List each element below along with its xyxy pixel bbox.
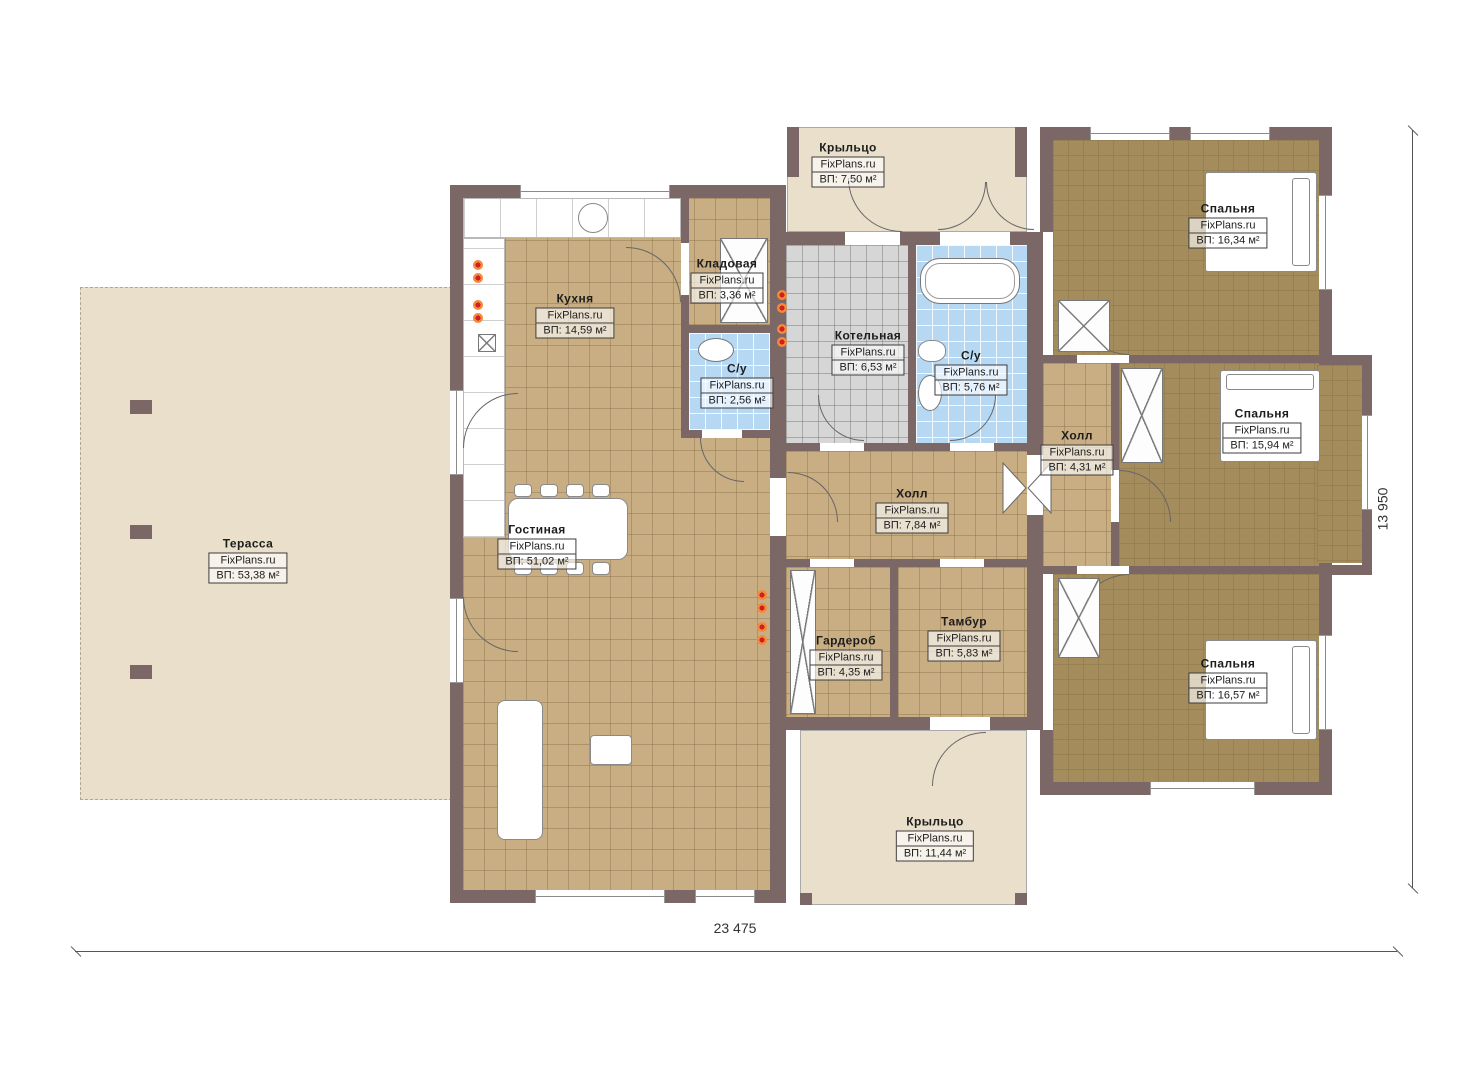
coffee-table — [590, 735, 632, 765]
room-name: Спальня — [1188, 657, 1267, 671]
site-link: FixPlans.ru — [810, 651, 881, 666]
door-opening — [770, 478, 786, 536]
site-link: FixPlans.ru — [536, 309, 613, 324]
bed-pillow — [1292, 178, 1310, 266]
site-link: FixPlans.ru — [935, 366, 1006, 381]
site-link: FixPlans.ru — [832, 346, 903, 361]
site-link: FixPlans.ru — [1041, 446, 1112, 461]
room-label-terrace: Терасса FixPlans.ruВП: 53,38 м² — [208, 537, 287, 584]
window — [1090, 127, 1170, 140]
room-area: ВП: 11,44 м² — [897, 847, 973, 861]
stove-burners-icon — [468, 296, 488, 326]
door-opening — [810, 559, 854, 567]
room-label-porch-bottom: Крыльцо FixPlans.ruВП: 11,44 м² — [896, 815, 974, 862]
room-label-hall-center: Холл FixPlans.ruВП: 7,84 м² — [875, 487, 948, 534]
room-area: ВП: 6,53 м² — [832, 361, 903, 375]
window — [450, 598, 463, 683]
room-name: Холл — [1040, 429, 1113, 443]
sofa — [497, 700, 543, 840]
closet-icon — [1121, 368, 1163, 463]
closet-icon — [1058, 578, 1100, 658]
door-opening — [681, 243, 689, 295]
room-name: Тамбур — [927, 615, 1000, 629]
stove-burners-icon — [468, 256, 488, 286]
chair — [592, 484, 610, 497]
window — [520, 185, 670, 198]
window — [450, 390, 463, 475]
room-name: Крыльцо — [811, 141, 884, 155]
partition-wall — [681, 325, 783, 333]
room-name: Крыльцо — [896, 815, 974, 829]
door-opening — [950, 443, 994, 451]
room-name: Кладовая — [690, 257, 763, 271]
window — [1319, 635, 1332, 730]
site-link: FixPlans.ru — [209, 554, 286, 569]
wall — [450, 185, 463, 903]
porch-post — [800, 893, 812, 905]
toilet-icon — [698, 338, 734, 362]
room-name: Спальня — [1188, 202, 1267, 216]
window — [695, 890, 755, 903]
partition-wall — [908, 245, 916, 443]
partition-wall — [681, 185, 689, 438]
room-area: ВП: 7,50 м² — [812, 173, 883, 187]
porch-post — [787, 127, 799, 177]
terrace-post — [130, 400, 152, 414]
room-name: Гостиная — [497, 523, 576, 537]
room-label-porch-top: Крыльцо FixPlans.ruВП: 7,50 м² — [811, 141, 884, 188]
door-opening — [702, 430, 742, 438]
door-opening — [820, 443, 864, 451]
site-link: FixPlans.ru — [498, 540, 575, 555]
door-opening — [1077, 566, 1129, 574]
room-area: ВП: 7,84 м² — [876, 519, 947, 533]
window — [1150, 782, 1255, 795]
site-link: FixPlans.ru — [1223, 424, 1300, 439]
partition-wall — [890, 567, 898, 717]
bed-pillow — [1292, 646, 1310, 734]
room-name: Холл — [875, 487, 948, 501]
terrace-post — [130, 525, 152, 539]
room-area: ВП: 2,56 м² — [701, 394, 772, 408]
site-link: FixPlans.ru — [928, 632, 999, 647]
bed-pillow — [1226, 374, 1314, 390]
wall — [1040, 127, 1053, 232]
appliance-icon — [478, 334, 496, 352]
site-link: FixPlans.ru — [876, 504, 947, 519]
door-opening — [845, 232, 900, 245]
chair — [592, 562, 610, 575]
door-opening — [940, 559, 984, 567]
door-opening — [1077, 355, 1129, 363]
kitchen-sink-icon — [578, 203, 608, 233]
room-area: ВП: 16,57 м² — [1189, 689, 1266, 703]
bedroom-middle-bay-floor — [1317, 365, 1362, 563]
room-area: ВП: 5,76 м² — [935, 381, 1006, 395]
room-label-hall-small: Холл FixPlans.ruВП: 4,31 м² — [1040, 429, 1113, 476]
door-opening — [940, 232, 1010, 245]
room-name: С/у — [700, 362, 773, 376]
room-label-boiler-room: Котельная FixPlans.ruВП: 6,53 м² — [831, 329, 904, 376]
room-area: ВП: 16,34 м² — [1189, 234, 1266, 248]
porch-post — [1015, 127, 1027, 177]
room-label-wc-small: С/у FixPlans.ruВП: 2,56 м² — [700, 362, 773, 409]
room-label-wardrobe: Гардероб FixPlans.ruВП: 4,35 м² — [809, 634, 882, 681]
bathtub-icon — [920, 258, 1020, 304]
radiator-icon — [772, 286, 792, 316]
chair — [540, 484, 558, 497]
room-label-bedroom-middle: Спальня FixPlans.ruВП: 15,94 м² — [1222, 407, 1301, 454]
window — [1362, 415, 1372, 510]
dimension-height-label: 13 950 — [1375, 488, 1391, 531]
room-name: Котельная — [831, 329, 904, 343]
room-label-bedroom-bottom: Спальня FixPlans.ruВП: 16,57 м² — [1188, 657, 1267, 704]
door-opening — [930, 717, 990, 730]
radiator-icon — [772, 320, 792, 350]
wall — [786, 717, 1040, 730]
room-area: ВП: 53,38 м² — [209, 569, 286, 583]
room-area: ВП: 3,36 м² — [691, 289, 762, 303]
wall — [1040, 127, 1332, 140]
dimension-tick — [1408, 883, 1419, 894]
radiator-icon — [752, 586, 772, 616]
room-label-living-room: Гостиная FixPlans.ruВП: 51,02 м² — [497, 523, 576, 570]
room-label-pantry: Кладовая FixPlans.ruВП: 3,36 м² — [690, 257, 763, 304]
floor-plan-canvas: Терасса FixPlans.ruВП: 53,38 м² Кухня Fi… — [0, 0, 1474, 1080]
dimension-width-label: 23 475 — [714, 920, 757, 936]
dimension-tick — [1408, 125, 1419, 136]
room-label-kitchen: Кухня FixPlans.ruВП: 14,59 м² — [535, 292, 614, 339]
window — [1190, 127, 1270, 140]
kitchen-counter — [463, 198, 681, 238]
site-link: FixPlans.ru — [812, 158, 883, 173]
site-link: FixPlans.ru — [897, 832, 973, 847]
window — [535, 890, 665, 903]
room-name: Гардероб — [809, 634, 882, 648]
room-label-vestibule: Тамбур FixPlans.ruВП: 5,83 м² — [927, 615, 1000, 662]
porch-post — [1015, 893, 1027, 905]
site-link: FixPlans.ru — [1189, 219, 1266, 234]
site-link: FixPlans.ru — [1189, 674, 1266, 689]
chair — [566, 484, 584, 497]
room-area: ВП: 51,02 м² — [498, 555, 575, 569]
room-name: Спальня — [1222, 407, 1301, 421]
room-area: ВП: 4,31 м² — [1041, 461, 1112, 475]
terrace-post — [130, 665, 152, 679]
room-label-bedroom-top: Спальня FixPlans.ruВП: 16,34 м² — [1188, 202, 1267, 249]
room-area: ВП: 14,59 м² — [536, 324, 613, 338]
room-label-bathroom: С/у FixPlans.ruВП: 5,76 м² — [934, 349, 1007, 396]
room-area: ВП: 4,35 м² — [810, 666, 881, 680]
dimension-line-horizontal — [75, 951, 1397, 952]
door-opening — [1111, 470, 1119, 522]
dimension-line-vertical — [1412, 130, 1413, 888]
window — [1319, 195, 1332, 290]
wall — [1319, 565, 1372, 575]
room-name: С/у — [934, 349, 1007, 363]
site-link: FixPlans.ru — [701, 379, 772, 394]
room-area: ВП: 5,83 м² — [928, 647, 999, 661]
room-name: Терасса — [208, 537, 287, 551]
closet-icon — [1058, 300, 1110, 352]
room-name: Кухня — [535, 292, 614, 306]
room-area: ВП: 15,94 м² — [1223, 439, 1300, 453]
chair — [514, 484, 532, 497]
radiator-icon — [752, 618, 772, 648]
site-link: FixPlans.ru — [691, 274, 762, 289]
